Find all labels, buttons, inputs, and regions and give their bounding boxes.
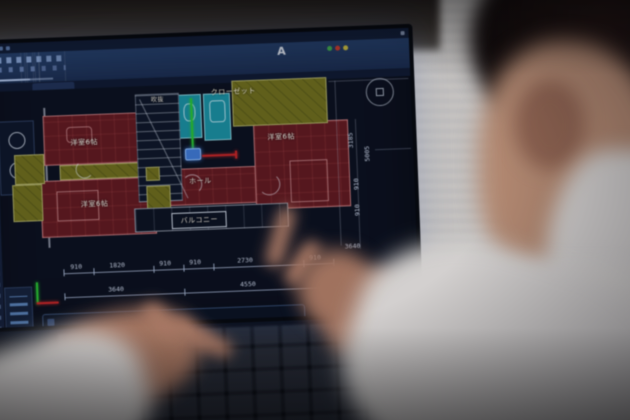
- dim-text: 2730: [237, 256, 253, 265]
- room-label-bedroom-bottom-left: 洋室6帖: [81, 199, 109, 210]
- redo-icon[interactable]: [6, 46, 10, 50]
- room-label-bedroom-right: 洋室6帖: [267, 131, 295, 142]
- ribbon-panel-utilities[interactable]: [0, 51, 66, 84]
- undo-icon[interactable]: [0, 46, 3, 50]
- x-axis-end-tick: [235, 151, 237, 159]
- dim-text: 3640: [345, 242, 361, 251]
- dim-text: 5005: [363, 146, 372, 162]
- room-closet: [231, 77, 328, 127]
- room-label-bedroom-top-left: 洋室6帖: [70, 137, 98, 148]
- dim-text: 3640: [108, 285, 124, 294]
- person-ear: [515, 80, 585, 170]
- dim-text: 4550: [240, 280, 256, 289]
- dim-text: 910: [352, 178, 360, 190]
- room-olive-left-lower: [12, 184, 43, 222]
- balcony-label-box: バルコニー: [171, 211, 227, 229]
- room-label-stairwell: 吹抜: [151, 94, 164, 103]
- dim-tick: [93, 268, 94, 275]
- layer-list-panel[interactable]: [4, 287, 34, 333]
- room-label: バルコニー: [180, 215, 218, 224]
- selected-block[interactable]: [185, 148, 201, 161]
- dim-text: 910: [189, 258, 201, 266]
- dim-tick: [63, 269, 64, 276]
- room-label-hall: ホール: [189, 176, 212, 187]
- window-close-icon[interactable]: [401, 31, 405, 35]
- dim-tick: [64, 293, 65, 300]
- dim-tick: [213, 264, 214, 271]
- bed-outline: [289, 159, 329, 202]
- room-olive-left-upper: [14, 154, 45, 185]
- bathtub-fixture: [209, 100, 226, 123]
- dim-tick: [153, 266, 154, 273]
- room-olive-center-small: [146, 167, 161, 182]
- room-bathroom: [203, 93, 232, 141]
- dim-text: 910: [159, 259, 171, 267]
- dim-tick: [184, 289, 185, 296]
- dim-tick: [183, 265, 184, 272]
- dim-text: 910: [353, 204, 361, 216]
- dim-text: 1820: [109, 261, 125, 270]
- photo-scene: A: [0, 0, 630, 420]
- dim-text: 910: [70, 263, 82, 271]
- command-prompt-icon: [47, 319, 54, 326]
- compass-inner-square: [376, 88, 384, 96]
- text-style-icon[interactable]: A: [277, 45, 286, 58]
- room-label-closet: クローゼット: [211, 86, 256, 98]
- dim-text: 3185: [346, 132, 355, 148]
